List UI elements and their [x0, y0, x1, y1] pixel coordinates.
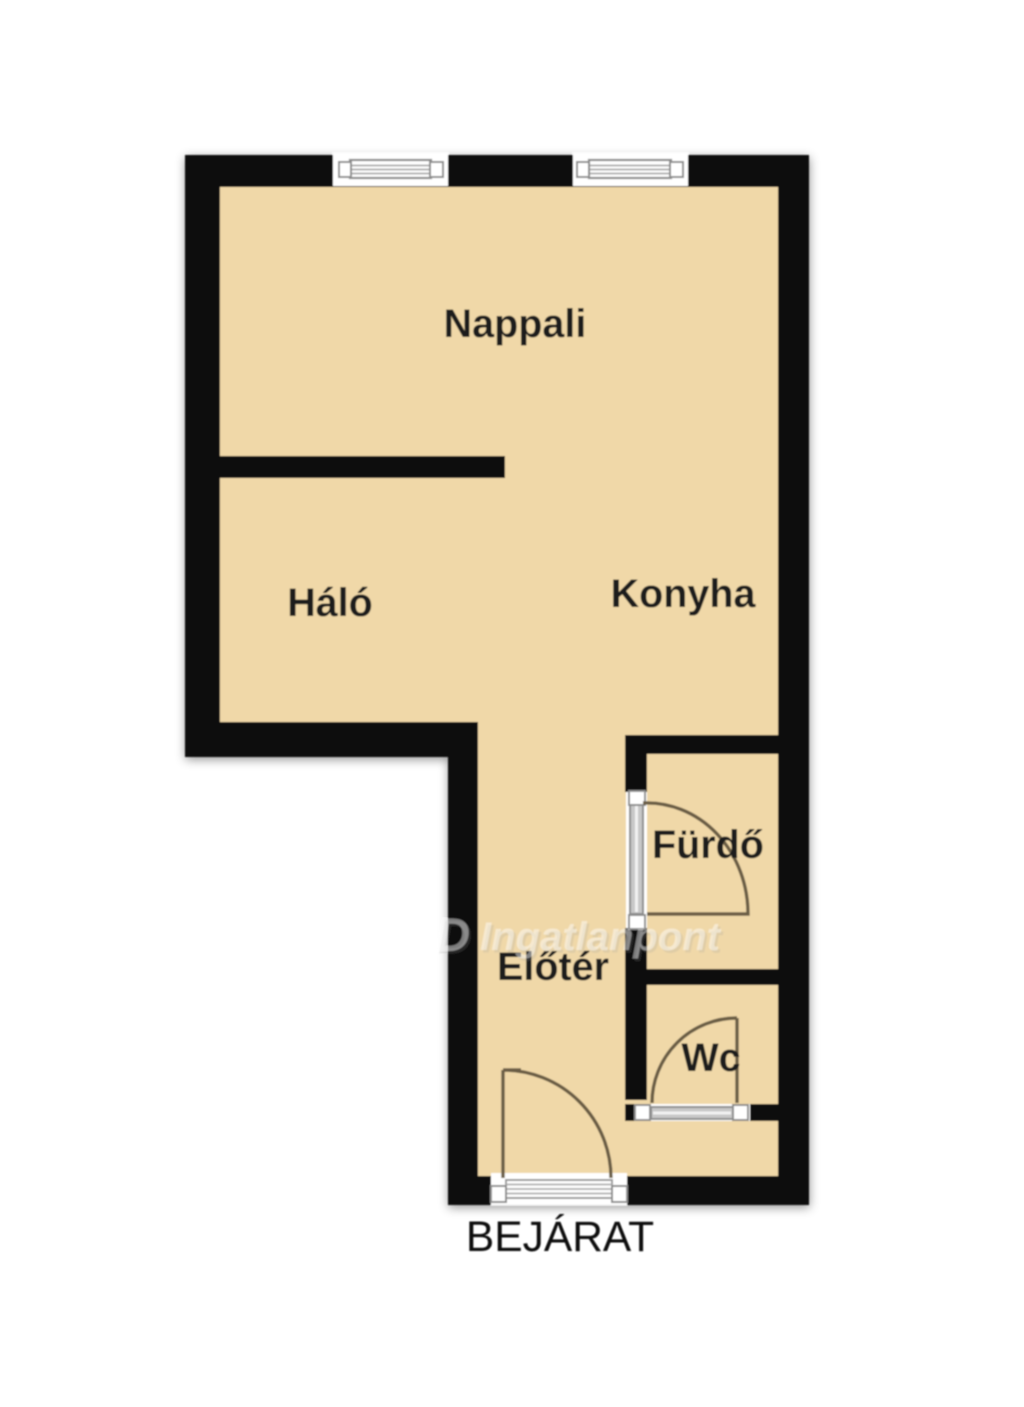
svg-text:BEJÁRAT: BEJÁRAT	[466, 1214, 654, 1261]
svg-text:Háló: Háló	[287, 581, 373, 625]
svg-text:Ingatlanpont: Ingatlanpont	[480, 915, 722, 959]
svg-text:D: D	[436, 908, 470, 961]
svg-text:Fürdő: Fürdő	[652, 823, 764, 867]
svg-text:Nappali: Nappali	[444, 302, 587, 346]
svg-text:Konyha: Konyha	[611, 572, 757, 616]
svg-text:Wc: Wc	[681, 1036, 740, 1080]
